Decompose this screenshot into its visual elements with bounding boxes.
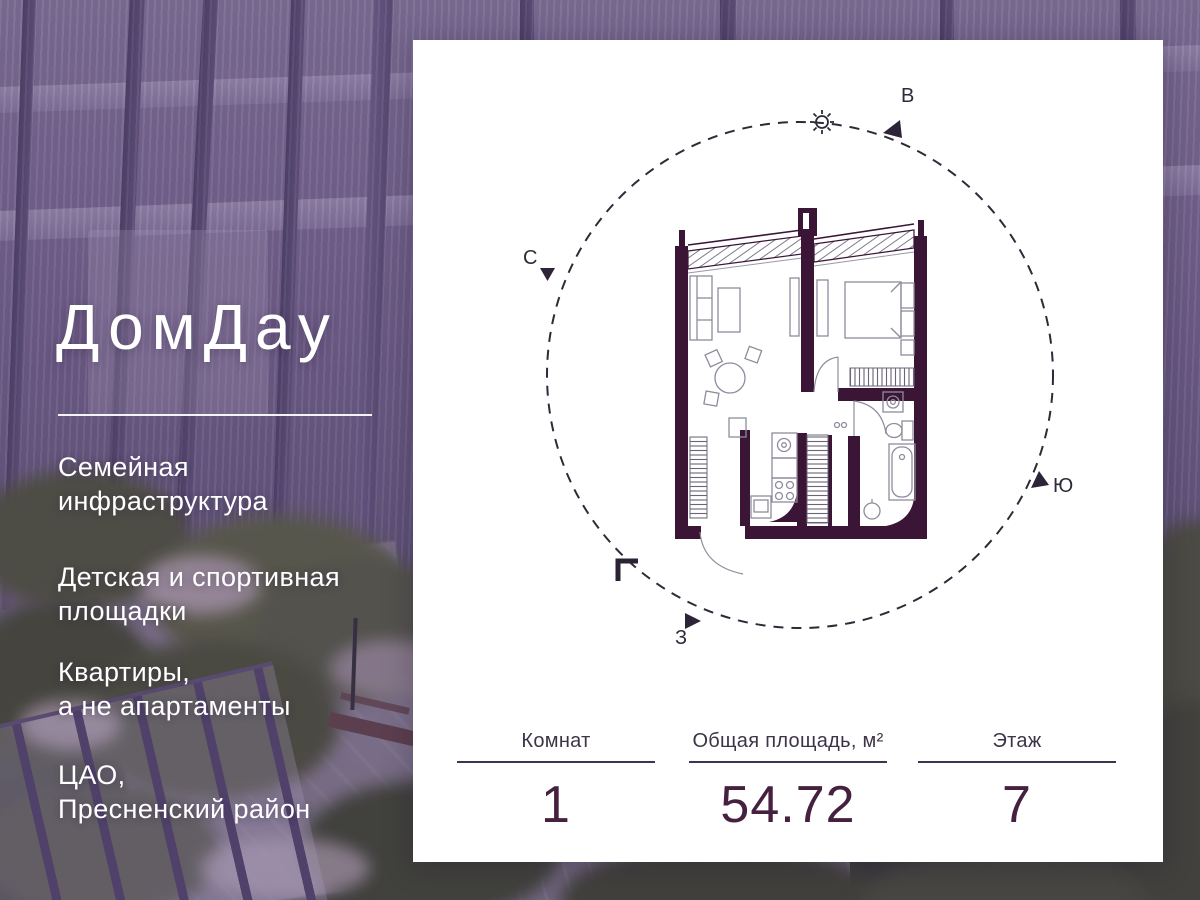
sofa bbox=[690, 276, 712, 340]
corridor-closet bbox=[807, 435, 828, 523]
feature-line: инфраструктура bbox=[58, 484, 268, 518]
compass-south-label: Ю bbox=[1053, 475, 1073, 497]
compass-circle bbox=[547, 122, 1053, 628]
bedroom-wardrobe bbox=[850, 368, 914, 386]
entry-door bbox=[700, 532, 743, 574]
compass-west-label: З bbox=[675, 627, 687, 649]
compass-east-arrow-icon bbox=[883, 120, 902, 138]
stat-divider bbox=[918, 761, 1116, 763]
feature-item: Семейная инфраструктура bbox=[58, 450, 268, 518]
stat-floor-label: Этаж bbox=[918, 730, 1116, 753]
stat-area-value: 54.72 bbox=[689, 775, 887, 835]
feature-line: Семейная bbox=[58, 450, 268, 484]
brand-logo: ДомДау bbox=[56, 290, 338, 364]
bathtub bbox=[889, 444, 915, 500]
logo-divider bbox=[58, 414, 372, 416]
stat-area: Общая площадь, м² 54.72 bbox=[689, 730, 887, 835]
bedroom-door bbox=[814, 357, 838, 392]
stat-divider bbox=[689, 761, 887, 763]
dining-table bbox=[715, 363, 745, 393]
compass: С В Ю З bbox=[523, 85, 1073, 649]
hall-closet bbox=[690, 437, 707, 518]
compass-north-label: С bbox=[523, 247, 537, 269]
feature-item: Квартиры, а не апартаменты bbox=[58, 655, 291, 723]
feature-item: ЦАО, Пресненский район bbox=[58, 758, 311, 826]
compass-north-arrow-icon bbox=[540, 268, 555, 281]
vent bbox=[835, 423, 840, 428]
chair bbox=[745, 346, 762, 363]
feature-line: Квартиры, bbox=[58, 655, 291, 689]
wall-slot bbox=[803, 213, 809, 229]
feature-line: площадки bbox=[58, 594, 340, 628]
feature-line: Пресненский район bbox=[58, 792, 311, 826]
floorplan-and-compass: С В Ю З bbox=[413, 40, 1163, 760]
stat-rooms-label: Комнат bbox=[457, 730, 655, 753]
compass-west-arrow-icon bbox=[685, 613, 701, 629]
listing-ad: ДомДау Семейная инфраструктура Детская и… bbox=[0, 0, 1200, 900]
bathroom-door bbox=[854, 401, 886, 436]
tv-stand bbox=[790, 278, 799, 336]
bathroom-sink bbox=[864, 499, 880, 519]
feature-line: ЦАО, bbox=[58, 758, 311, 792]
chair bbox=[704, 391, 719, 406]
feature-item: Детская и спортивная площадки bbox=[58, 560, 340, 628]
bed bbox=[845, 282, 914, 338]
stat-area-label: Общая площадь, м² bbox=[689, 730, 887, 753]
stat-floor-value: 7 bbox=[918, 775, 1116, 835]
compass-east-label: В bbox=[901, 85, 914, 107]
toilet bbox=[886, 421, 913, 440]
kitchen-units bbox=[751, 433, 797, 518]
corner-mark bbox=[618, 561, 638, 581]
vent bbox=[842, 423, 847, 428]
feature-line: а не апартаменты bbox=[58, 689, 291, 723]
compass-south-arrow-icon bbox=[1031, 471, 1049, 488]
stat-rooms: Комнат 1 bbox=[457, 730, 655, 835]
dresser bbox=[817, 280, 828, 336]
stat-divider bbox=[457, 761, 655, 763]
listing-card: С В Ю З bbox=[413, 40, 1163, 862]
stat-rooms-value: 1 bbox=[457, 775, 655, 835]
coffee-table bbox=[718, 288, 740, 332]
nightstand bbox=[901, 340, 914, 355]
floorplan bbox=[675, 208, 927, 574]
feature-line: Детская и спортивная bbox=[58, 560, 340, 594]
chair bbox=[705, 350, 722, 367]
stat-floor: Этаж 7 bbox=[918, 730, 1116, 835]
